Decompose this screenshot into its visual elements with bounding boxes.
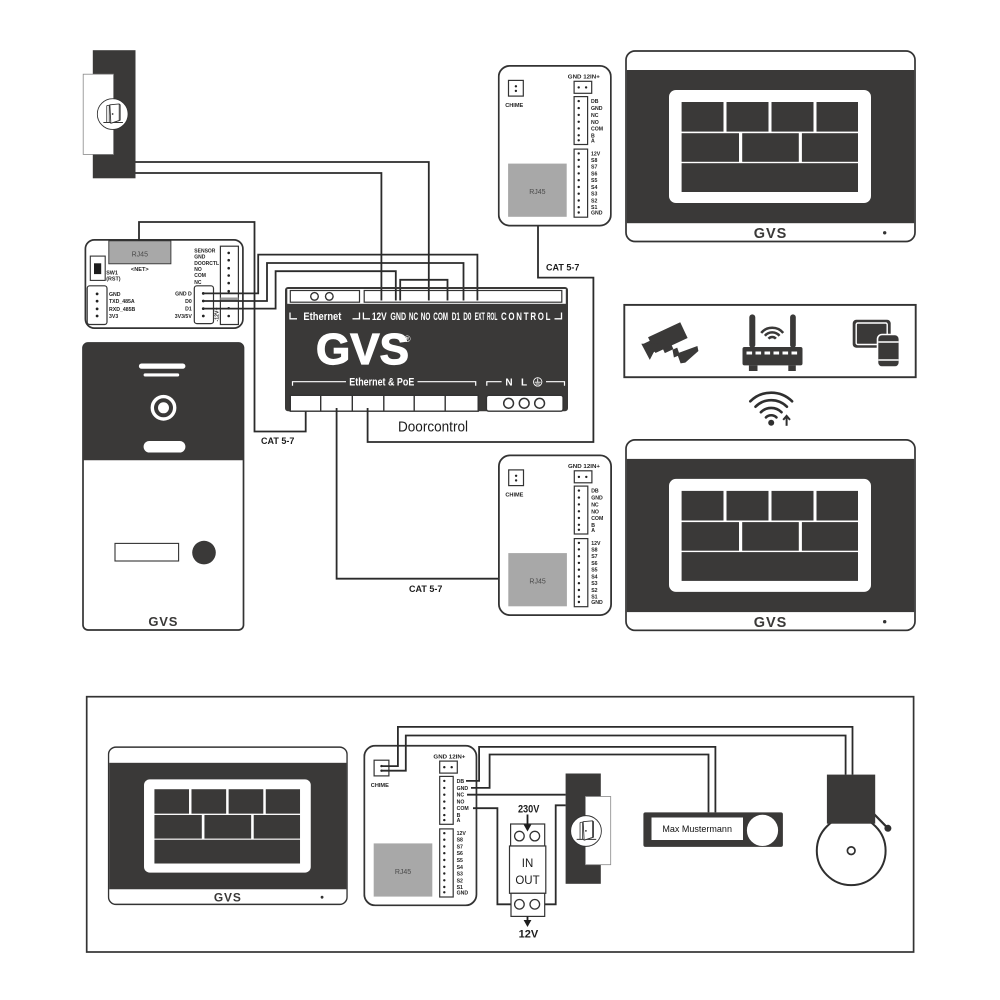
svg-text:-12V+: -12V+: [214, 308, 220, 322]
svg-text:D1: D1: [452, 311, 460, 323]
svg-text:GND: GND: [390, 311, 406, 323]
svg-text:Ethernet: Ethernet: [303, 311, 341, 323]
svg-text:RJ45: RJ45: [132, 252, 148, 259]
svg-text:D0: D0: [185, 299, 192, 305]
svg-text:CONTROL: CONTROL: [501, 311, 552, 324]
svg-text:COM: COM: [194, 273, 206, 279]
svg-text:Max Mustermann: Max Mustermann: [662, 824, 732, 834]
svg-text:SENSOR: SENSOR: [194, 248, 216, 254]
svg-text:®: ®: [404, 334, 411, 344]
svg-text:(RST): (RST): [106, 277, 121, 283]
svg-text:GND: GND: [194, 255, 206, 261]
svg-text:230V: 230V: [518, 804, 540, 816]
svg-text:Ethernet & PoE: Ethernet & PoE: [349, 377, 414, 389]
svg-text:N: N: [505, 378, 512, 389]
svg-text:CAT 5-7: CAT 5-7: [409, 584, 442, 594]
svg-text:12V: 12V: [519, 928, 539, 940]
svg-text:CAT 5-7: CAT 5-7: [261, 436, 294, 446]
svg-text:GND: GND: [109, 292, 121, 298]
svg-text:IN: IN: [522, 858, 534, 870]
svg-text:D1: D1: [185, 307, 192, 313]
svg-text:3V3/5V: 3V3/5V: [175, 314, 193, 320]
svg-text:OUT: OUT: [515, 875, 539, 887]
svg-text:EXT: EXT: [475, 311, 485, 323]
svg-text:CAT 5-7: CAT 5-7: [546, 263, 579, 273]
svg-text:NO: NO: [194, 267, 202, 273]
svg-text:RXD_485B: RXD_485B: [109, 307, 135, 313]
svg-text:TXD_485A: TXD_485A: [109, 299, 135, 305]
svg-text:12V: 12V: [372, 311, 387, 323]
svg-text:3V3: 3V3: [109, 314, 118, 320]
svg-text:<NET>: <NET>: [131, 267, 149, 273]
svg-text:GND D: GND D: [175, 291, 192, 297]
svg-text:NC: NC: [409, 311, 418, 323]
svg-text:Doorcontrol: Doorcontrol: [398, 420, 468, 436]
svg-text:ROL: ROL: [487, 311, 498, 323]
svg-text:GVS: GVS: [316, 325, 409, 374]
svg-text:D0: D0: [463, 311, 471, 323]
svg-text:NO: NO: [421, 311, 431, 323]
svg-text:L: L: [521, 378, 527, 389]
svg-text:COM: COM: [433, 311, 448, 323]
svg-text:GVS: GVS: [148, 614, 178, 629]
